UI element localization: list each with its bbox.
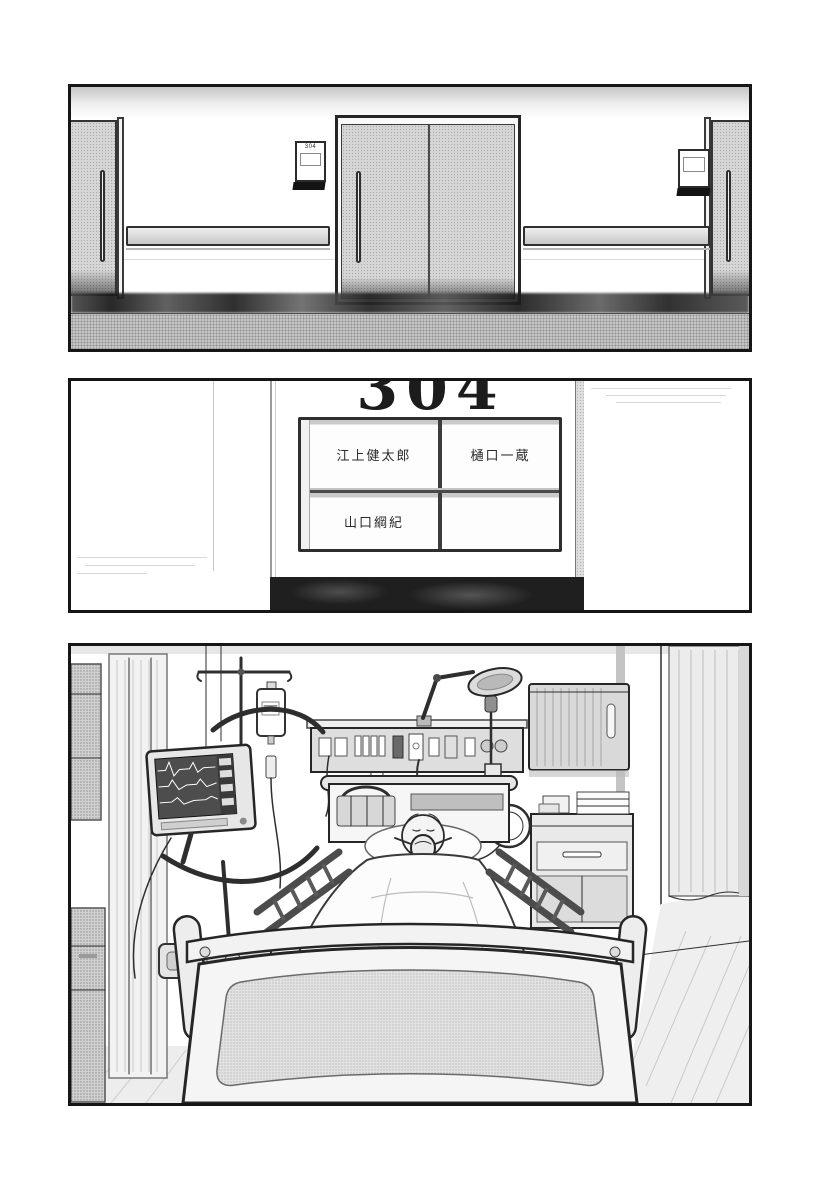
room-304-sign: 304 [295,141,326,182]
room-sign-name-card [300,153,321,166]
plate-divider-horizontal [310,488,559,493]
room-sign-right [678,149,710,188]
footboard-inner-panel [217,970,603,1085]
door-seam [428,125,430,298]
sketch-line [85,565,195,566]
door-right-edge [575,381,584,610]
door-frame-edge [270,381,276,577]
sign-shadow [292,182,325,190]
patient-name: 山口綱紀 [344,512,404,531]
left-door-frame [117,117,124,299]
right-door-frame [704,117,711,299]
privacy-curtain-right [669,646,749,900]
name-plate-top-right: 樋口一蔵 [442,420,559,488]
name-plate-bottom-right [442,493,559,549]
panel-door-sign-closeup: 304 江上健太郎 樋口一蔵 山口綱紀 [68,378,752,613]
sign-shadow [676,188,710,196]
hospital-room-scene [71,646,749,1103]
room-sign-name-card [683,157,705,172]
patient-name: 江上健太郎 [336,445,411,464]
name-plate-bottom-left: 山口綱紀 [310,493,438,549]
patient-monitor [146,744,256,835]
plate-holder-rail [301,420,310,549]
sketch-line [616,402,721,403]
handrail-right [523,226,710,246]
exam-light [417,664,524,726]
room-sign-number: 304 [297,143,324,151]
manga-page: 304 304 江上健太郎 樋口一蔵 [0,0,836,1189]
sketch-vertical-line [213,381,214,571]
bedside-cabinet [531,792,633,928]
footboard [173,915,648,1103]
storage-lockers [71,664,105,1102]
towels [539,792,629,814]
door-handle [726,170,731,262]
baseboard-shadow [71,293,749,313]
sketch-line [77,557,207,558]
left-room-door [71,120,117,296]
iv-bag [257,682,285,888]
sketch-line [591,388,731,389]
sliding-door-frame [335,115,521,305]
handrail-shadow [126,248,330,250]
handrail-left [126,226,330,246]
corridor-floor [71,313,749,350]
panel-hospital-room [68,643,752,1106]
door-handle [356,171,361,263]
door-bottom-shadow [270,577,584,610]
privacy-curtain-left [109,654,167,1078]
name-plate-board: 江上健太郎 樋口一蔵 山口綱紀 [298,417,562,552]
door-handle [100,170,105,262]
plate-divider-vertical [438,420,442,549]
right-room-door [711,120,749,296]
name-plate-top-left: 江上健太郎 [310,420,438,488]
sketch-line [77,573,147,574]
wall-cabinet [529,684,629,777]
sketch-line [606,395,726,396]
central-sliding-door [341,124,515,299]
room-number-large: 304 [351,378,511,419]
patient-name: 樋口一蔵 [470,445,530,464]
panel-hallway: 304 [68,84,752,352]
handrail-shadow [523,248,710,250]
